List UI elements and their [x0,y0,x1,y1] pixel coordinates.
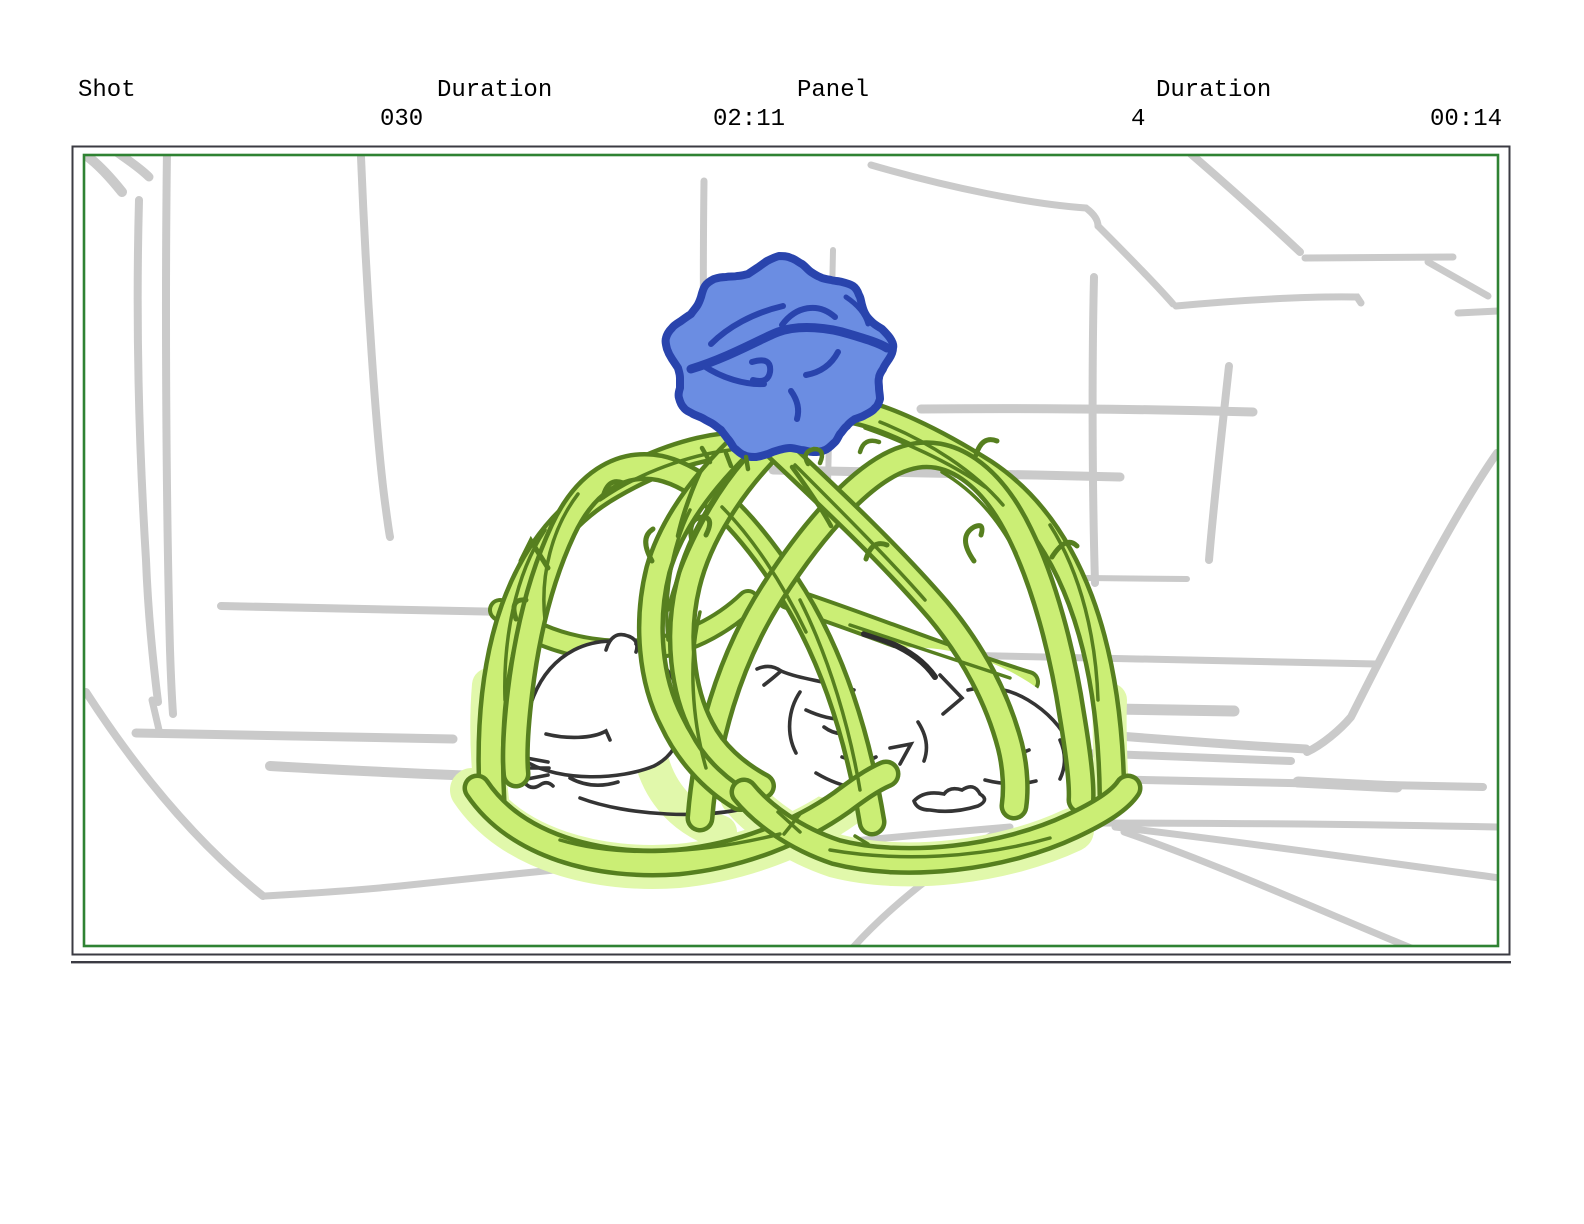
svg-text:Shot: Shot [78,77,136,104]
svg-text:Panel: Panel [797,77,869,104]
svg-text:4: 4 [1131,106,1145,133]
svg-text:02:11: 02:11 [713,106,785,133]
svg-text:00:14: 00:14 [1430,106,1502,133]
svg-text:Duration: Duration [437,77,552,104]
svg-text:Duration: Duration [1156,77,1271,104]
svg-text:030: 030 [380,106,423,133]
